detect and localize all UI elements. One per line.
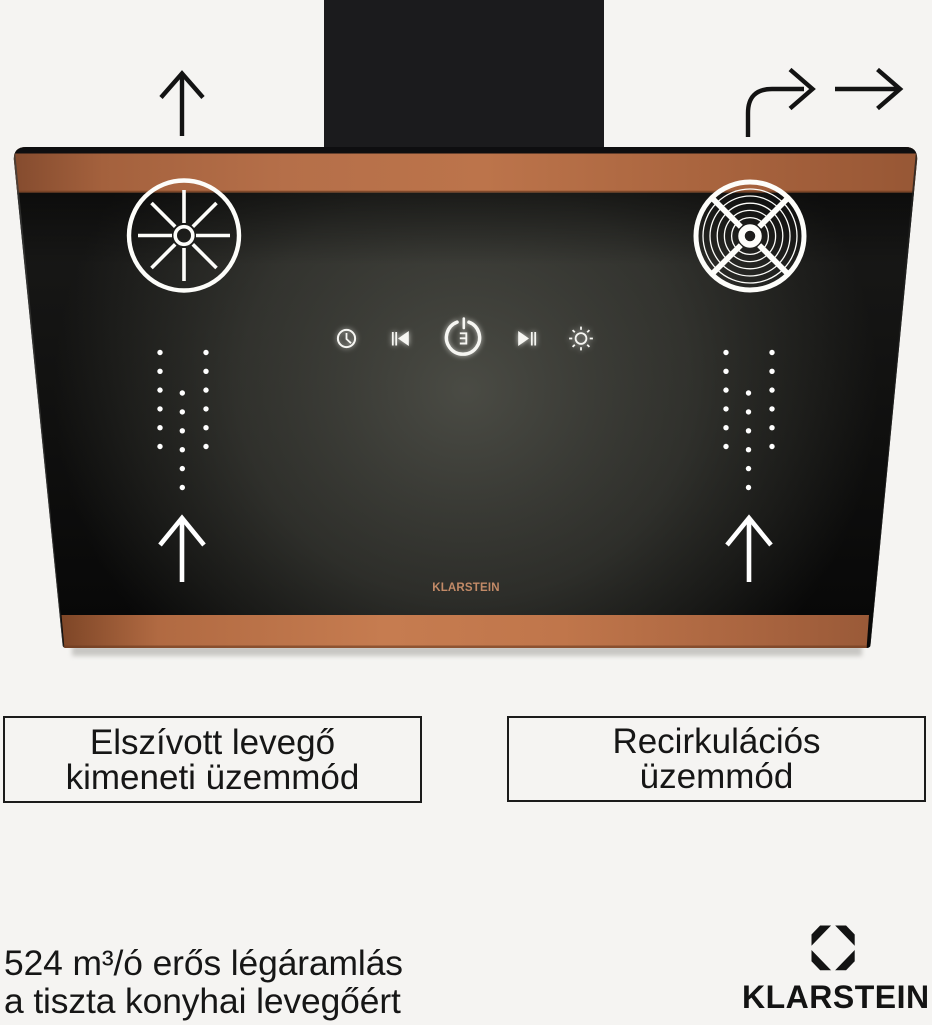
svg-text:KLARSTEIN: KLARSTEIN	[432, 582, 500, 594]
